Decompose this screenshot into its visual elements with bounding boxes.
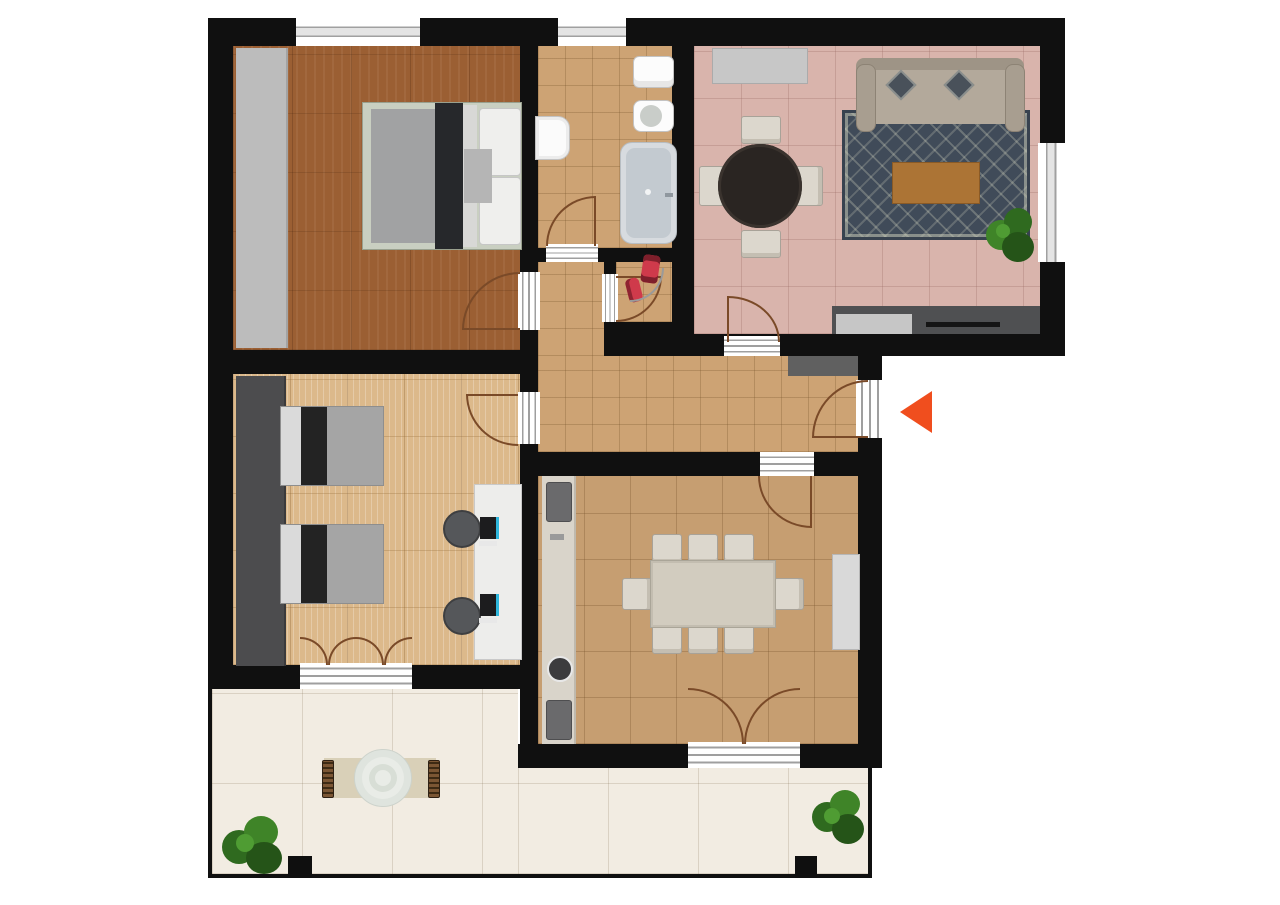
bed-blanket <box>371 109 435 243</box>
kitchen-counter <box>832 306 1040 334</box>
dining-sideboard <box>832 554 860 650</box>
terrace-bench-left <box>322 760 334 798</box>
doorway-twin-bedroom <box>518 392 540 444</box>
dining-chair-bottom-1 <box>652 624 682 654</box>
door-leaf-dining-room <box>810 476 812 528</box>
bed2-pillow <box>301 525 327 603</box>
office-chair-1 <box>443 510 481 548</box>
wall-bedrooms-divider <box>208 350 538 374</box>
terrace-bush-left <box>220 812 288 878</box>
window-living-room <box>1038 143 1065 262</box>
doorway-bathroom <box>546 244 598 262</box>
double-desk <box>474 484 522 660</box>
door-leaf-twin-bedroom <box>466 394 518 396</box>
terrace-bush-right <box>810 788 870 848</box>
office-chair-2 <box>443 597 481 635</box>
dining-table <box>650 560 776 628</box>
bed2-head <box>281 525 301 603</box>
keyboard-1 <box>479 541 497 546</box>
round-dining-table <box>718 144 802 228</box>
sofa-arm-left <box>856 64 876 132</box>
terrace-bench-right <box>428 760 440 798</box>
dining-chair-bottom-3 <box>724 624 754 654</box>
doorway-master-bedroom <box>518 272 540 330</box>
dining-chair-right <box>774 578 804 610</box>
kitchenette-sink <box>547 656 573 682</box>
door-leaf-bathroom <box>594 196 596 246</box>
twin-wardrobe <box>236 376 286 666</box>
master-wardrobe <box>236 48 288 348</box>
dining-chair-bottom-2 <box>688 624 718 654</box>
toilet <box>633 56 674 88</box>
washbasin <box>535 116 570 160</box>
bed1-head <box>281 407 301 485</box>
french-door-twin-bedroom <box>300 663 412 689</box>
french-door-dining-room <box>688 742 800 768</box>
bed-runner <box>435 103 463 249</box>
dining-chair-left <box>622 578 652 610</box>
monitor-2 <box>480 594 496 616</box>
terrace-border-left <box>208 689 212 878</box>
kitchen-sink <box>836 314 912 334</box>
kitchenette-handle <box>550 534 564 540</box>
doorway-dining-room <box>760 452 814 476</box>
bidet-basin <box>640 105 662 127</box>
doormat <box>788 356 858 376</box>
round-table-chair-bottom <box>741 230 781 258</box>
sofa <box>856 58 1024 130</box>
window-bathroom <box>558 18 626 46</box>
coffee-table <box>892 162 980 204</box>
living-sideboard <box>712 48 808 84</box>
bed1-pillow <box>301 407 327 485</box>
sofa-arm-right <box>1005 64 1025 132</box>
cooktop <box>926 322 1000 327</box>
floor-plan <box>0 0 1280 905</box>
window-master-bedroom <box>296 18 420 46</box>
monitor-1 <box>480 517 496 539</box>
appliance-top <box>546 482 572 522</box>
corridor-nub-floor <box>538 262 604 356</box>
terrace-pillar-left <box>288 856 312 878</box>
round-table-chair-top <box>741 116 781 144</box>
door-leaf-master-bedroom <box>462 328 520 330</box>
wall-hall-dining-divider <box>538 452 882 476</box>
single-bed-1 <box>280 406 384 486</box>
single-bed-2 <box>280 524 384 604</box>
bed2-blanket <box>327 525 383 603</box>
kitchenette-strip <box>542 476 576 744</box>
bed-throw <box>464 149 492 203</box>
bathtub-faucet <box>665 193 673 197</box>
appliance-bottom <box>546 700 572 740</box>
door-leaf-living-room <box>727 296 729 342</box>
living-plant <box>982 206 1038 264</box>
double-bed <box>362 102 522 250</box>
door-leaf-entrance <box>812 436 868 438</box>
bathtub <box>620 142 677 244</box>
terrace-round-table <box>354 749 412 807</box>
entrance-arrow <box>900 391 932 433</box>
wall-storage-bottom <box>604 322 672 356</box>
bed1-blanket <box>327 407 383 485</box>
bathtub-drain <box>645 189 651 195</box>
terrace-pillar-right <box>795 856 817 878</box>
keyboard-2 <box>479 618 497 623</box>
bidet <box>633 100 674 132</box>
